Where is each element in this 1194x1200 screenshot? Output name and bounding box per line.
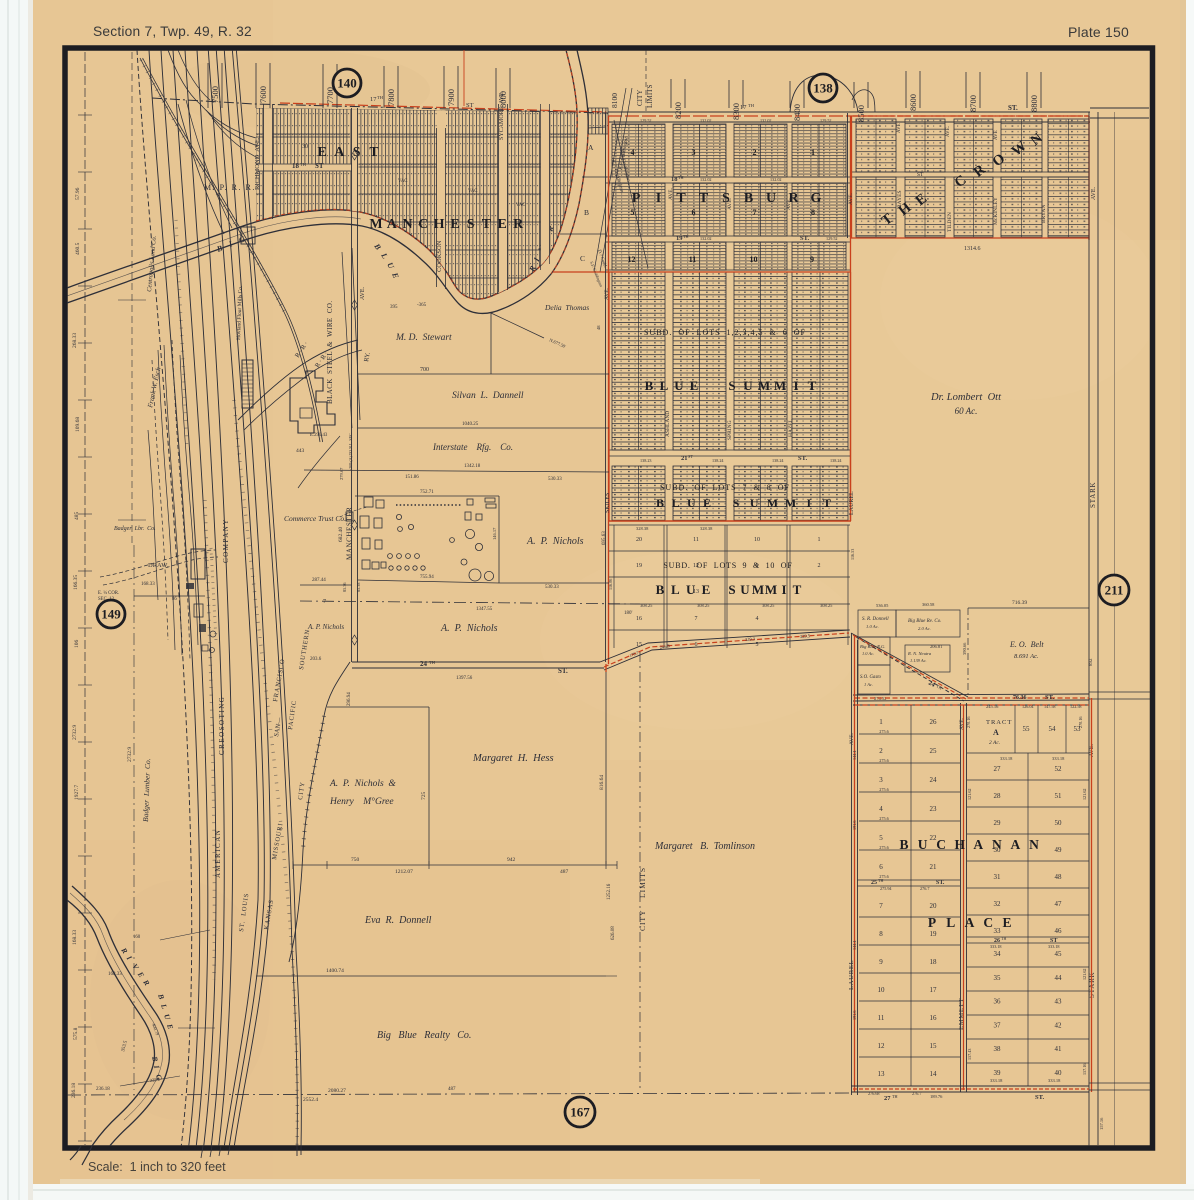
svg-text:I: I xyxy=(806,496,811,510)
svg-text:McKINLEY: McKINLEY xyxy=(993,197,999,225)
svg-text:AMERICAN: AMERICAN xyxy=(214,829,222,878)
svg-text:7800: 7800 xyxy=(386,89,396,106)
svg-text:E: E xyxy=(1002,915,1011,930)
svg-text:180': 180' xyxy=(624,611,633,616)
svg-text:51: 51 xyxy=(1055,792,1063,800)
svg-text:S. R. Donnell: S. R. Donnell xyxy=(862,617,889,622)
svg-text:21: 21 xyxy=(930,863,938,871)
svg-text:TH: TH xyxy=(1001,936,1006,941)
svg-text:25: 25 xyxy=(871,880,877,886)
svg-text:A: A xyxy=(973,837,983,852)
svg-text:329.5: 329.5 xyxy=(800,633,811,639)
svg-text:15: 15 xyxy=(930,1042,938,1050)
svg-text:Big Blue R.G.: Big Blue R.G. xyxy=(860,644,886,649)
svg-text:AVE.: AVE. xyxy=(668,187,674,200)
svg-text:S.O. Gasto: S.O. Gasto xyxy=(860,675,882,680)
svg-text:8400: 8400 xyxy=(792,104,802,121)
svg-text:A: A xyxy=(993,728,999,737)
svg-text:B: B xyxy=(899,837,908,852)
svg-text:14: 14 xyxy=(930,1070,938,1078)
svg-text:26: 26 xyxy=(930,718,938,726)
svg-text:ST: ST xyxy=(1050,938,1057,944)
svg-text:146.17: 146.17 xyxy=(492,527,497,540)
svg-text:SUBD. OF LOTS 9 & 10 OF: SUBD. OF LOTS 9 & 10 OF xyxy=(663,561,792,570)
svg-text:DRAW.: DRAW. xyxy=(148,562,169,569)
svg-text:276.7: 276.7 xyxy=(920,886,929,891)
svg-text:36: 36 xyxy=(994,998,1002,1006)
svg-text:1: 1 xyxy=(879,718,883,726)
svg-text:EMMETT: EMMETT xyxy=(958,998,965,1030)
svg-text:TH: TH xyxy=(892,1094,898,1099)
svg-text:86: 86 xyxy=(172,597,177,602)
svg-text:4: 4 xyxy=(631,148,635,157)
svg-text:ST.: ST. xyxy=(800,235,809,242)
svg-text:13: 13 xyxy=(878,1070,886,1078)
svg-text:40: 40 xyxy=(1055,1069,1063,1077)
svg-text:275.6: 275.6 xyxy=(879,816,888,821)
svg-text:SKILES: SKILES xyxy=(605,493,611,513)
svg-text:TRACT: TRACT xyxy=(986,719,1012,726)
svg-text:4: 4 xyxy=(756,616,759,622)
svg-text:26: 26 xyxy=(994,938,1000,944)
svg-text:1397.56: 1397.56 xyxy=(456,676,473,681)
svg-text:10: 10 xyxy=(878,986,886,994)
svg-text:485: 485 xyxy=(74,512,80,521)
svg-text:132.02: 132.02 xyxy=(700,177,712,182)
svg-text:E.290.43: E.290.43 xyxy=(310,433,328,438)
svg-text:B: B xyxy=(584,208,589,217)
svg-text:AVE: AVE xyxy=(897,123,902,133)
svg-text:1 Ac.: 1 Ac. xyxy=(864,682,873,687)
svg-text:SUBD. OF LOTS 1,2,3,4,5 &: SUBD. OF LOTS 1,2,3,4,5 & 6 OF xyxy=(644,328,806,337)
svg-text:530.33: 530.33 xyxy=(545,585,559,590)
svg-text:55: 55 xyxy=(1023,725,1031,733)
svg-text:8200: 8200 xyxy=(673,102,683,119)
svg-text:1347.55: 1347.55 xyxy=(476,607,493,612)
svg-text:AVE.: AVE. xyxy=(849,732,855,745)
svg-text:S: S xyxy=(728,582,735,597)
svg-text:1400.74: 1400.74 xyxy=(326,968,344,974)
svg-text:U: U xyxy=(740,582,750,597)
svg-text:85.36: 85.36 xyxy=(342,583,347,592)
svg-text:129.52: 129.52 xyxy=(826,236,838,241)
svg-text:287.44: 287.44 xyxy=(312,578,326,583)
svg-text:ST: ST xyxy=(315,162,324,170)
svg-text:AVE.: AVE. xyxy=(727,197,733,210)
svg-text:P: P xyxy=(928,915,936,930)
svg-text:B: B xyxy=(645,378,654,393)
svg-text:20: 20 xyxy=(930,902,938,910)
svg-text:CITY: CITY xyxy=(638,910,647,932)
svg-text:23: 23 xyxy=(930,805,938,813)
svg-text:132.02: 132.02 xyxy=(700,118,712,123)
svg-text:129.52: 129.52 xyxy=(820,118,832,123)
svg-text:54: 54 xyxy=(1049,725,1057,733)
svg-text:VAC: VAC xyxy=(468,189,478,194)
svg-text:Commerce Trust Co.: Commerce Trust Co. xyxy=(284,514,346,523)
svg-text:2: 2 xyxy=(753,148,757,157)
svg-text:32: 32 xyxy=(994,900,1002,908)
svg-text:4: 4 xyxy=(879,805,883,813)
svg-text:333.18: 333.18 xyxy=(990,1078,1003,1083)
svg-text:85.38: 85.38 xyxy=(356,583,361,592)
svg-text:138.24: 138.24 xyxy=(772,458,784,463)
svg-text:20: 20 xyxy=(636,537,642,543)
svg-text:E: E xyxy=(690,378,699,393)
svg-text:Margaret B. Tomlinson: Margaret B. Tomlinson xyxy=(654,841,755,852)
svg-text:A. P. Nichols: A. P. Nichols xyxy=(440,623,498,634)
svg-text:10: 10 xyxy=(750,255,758,264)
svg-text:166.35: 166.35 xyxy=(73,575,79,590)
svg-text:T: T xyxy=(482,217,492,232)
svg-text:279.67: 279.67 xyxy=(339,467,344,480)
svg-text:T: T xyxy=(793,582,802,597)
svg-text:T: T xyxy=(699,191,709,206)
svg-text:38: 38 xyxy=(994,1045,1002,1053)
svg-text:37: 37 xyxy=(994,1021,1002,1029)
svg-text:L: L xyxy=(660,378,669,393)
svg-text:296.94: 296.94 xyxy=(347,692,352,706)
svg-text:ST.: ST. xyxy=(1045,694,1054,701)
svg-text:2732.9: 2732.9 xyxy=(72,725,78,740)
svg-text:M: M xyxy=(758,378,770,393)
svg-text:L: L xyxy=(672,496,680,510)
svg-text:48: 48 xyxy=(596,325,601,330)
svg-text:A: A xyxy=(588,143,594,152)
svg-text:157.16: 157.16 xyxy=(1082,1063,1087,1075)
svg-text:CITY: CITY xyxy=(636,90,644,106)
svg-text:151.86: 151.86 xyxy=(405,475,419,480)
svg-text:191.6: 191.6 xyxy=(852,1011,857,1020)
svg-text:144.4: 144.4 xyxy=(852,750,857,760)
svg-text:LIMITS: LIMITS xyxy=(638,867,647,898)
svg-text:Dr. Lombert Ott: Dr. Lombert Ott xyxy=(930,392,1002,403)
svg-text:Interstate Rfg. Co.: Interstate Rfg. Co. xyxy=(432,442,513,452)
svg-text:U: U xyxy=(674,378,684,393)
svg-text:132.02: 132.02 xyxy=(700,236,712,241)
svg-text:276.68: 276.68 xyxy=(868,1091,880,1096)
svg-text:ST: ST xyxy=(466,102,474,109)
svg-text:7900: 7900 xyxy=(446,89,456,106)
svg-text:57.96: 57.96 xyxy=(75,187,81,200)
svg-text:52: 52 xyxy=(1055,765,1063,773)
svg-text:M: M xyxy=(369,217,382,232)
svg-text:TH: TH xyxy=(678,175,684,180)
svg-text:A: A xyxy=(334,145,345,160)
svg-text:Scale: 1 inch to 320 feet: Scale: 1 inch to 320 feet xyxy=(88,1160,226,1174)
svg-text:121.62: 121.62 xyxy=(1082,968,1087,980)
svg-text:206.81: 206.81 xyxy=(930,644,942,649)
svg-text:M. P. R. R.: M. P. R. R. xyxy=(204,183,256,192)
svg-text:725: 725 xyxy=(421,792,427,801)
svg-text:STARK: STARK xyxy=(1089,482,1097,508)
svg-text:157.16: 157.16 xyxy=(1099,1117,1104,1130)
svg-text:LAUREL: LAUREL xyxy=(849,491,855,515)
svg-text:SYCAMORE AVE.: SYCAMORE AVE. xyxy=(499,90,505,140)
svg-text:46: 46 xyxy=(1055,927,1063,935)
svg-text:695.63: 695.63 xyxy=(602,531,607,545)
svg-text:17: 17 xyxy=(930,986,938,994)
svg-text:-365: -365 xyxy=(417,303,427,308)
svg-text:44: 44 xyxy=(1055,974,1063,982)
svg-text:144.4: 144.4 xyxy=(852,940,857,950)
svg-text:360.58: 360.58 xyxy=(922,602,935,607)
svg-text:U: U xyxy=(766,191,776,206)
svg-text:333.18: 333.18 xyxy=(1048,1078,1061,1083)
svg-text:333.18: 333.18 xyxy=(1048,944,1060,949)
svg-text:SUBD. OF LOTS 7 & 8 OF: SUBD. OF LOTS 7 & 8 OF xyxy=(660,483,790,492)
svg-text:16: 16 xyxy=(930,1014,938,1022)
svg-text:-269.(A) TO N.L. SEC.: -269.(A) TO N.L. SEC. xyxy=(348,432,353,470)
svg-text:N: N xyxy=(992,837,1002,852)
svg-text:892: 892 xyxy=(1089,658,1094,666)
svg-text:275.6: 275.6 xyxy=(879,845,888,850)
svg-text:L: L xyxy=(946,915,955,930)
svg-text:ST.: ST. xyxy=(1008,104,1018,112)
svg-text:8: 8 xyxy=(879,930,883,938)
svg-text:Delia Thomas: Delia Thomas xyxy=(544,303,589,312)
svg-text:M. D. Stewart: M. D. Stewart xyxy=(395,333,452,343)
svg-text:390.66: 390.66 xyxy=(962,642,967,655)
svg-text:41: 41 xyxy=(1055,1045,1063,1053)
svg-text:A: A xyxy=(387,217,398,232)
svg-text:AVE: AVE xyxy=(994,130,999,140)
svg-text:B: B xyxy=(656,496,664,510)
svg-text:138: 138 xyxy=(813,81,833,96)
svg-text:BRYAN: BRYAN xyxy=(1041,205,1047,223)
svg-text:MANCHESTER: MANCHESTER xyxy=(346,507,354,560)
svg-text:27: 27 xyxy=(884,1095,891,1102)
svg-text:750: 750 xyxy=(351,857,360,863)
svg-text:122.58: 122.58 xyxy=(1070,704,1082,709)
svg-text:24: 24 xyxy=(930,776,938,784)
svg-text:VAC: VAC xyxy=(516,203,526,208)
svg-text:Plate 150: Plate 150 xyxy=(1068,24,1129,40)
svg-text:1314.6: 1314.6 xyxy=(964,246,981,252)
svg-text:19: 19 xyxy=(636,563,642,569)
svg-text:ST.: ST. xyxy=(798,455,807,462)
svg-text:21: 21 xyxy=(681,455,688,462)
svg-text:T: T xyxy=(369,145,379,160)
svg-text:RAYES: RAYES xyxy=(897,190,903,208)
svg-text:AVE.: AVE. xyxy=(959,717,965,730)
svg-text:275.94: 275.94 xyxy=(880,886,892,891)
svg-text:TH: TH xyxy=(748,103,755,108)
svg-text:ASHLAND: ASHLAND xyxy=(665,411,671,437)
svg-text:ST: ST xyxy=(917,172,924,178)
svg-text:1.139 Ac.: 1.139 Ac. xyxy=(910,658,927,663)
svg-text:167: 167 xyxy=(570,1105,590,1120)
svg-text:Big Blue Realty Co.: Big Blue Realty Co. xyxy=(377,1030,471,1041)
svg-text:333.18: 333.18 xyxy=(1000,756,1013,761)
svg-text:942: 942 xyxy=(507,857,516,863)
svg-text:A. P. Nichols: A. P. Nichols xyxy=(526,536,584,547)
svg-text:Eva R. Donnell: Eva R. Donnell xyxy=(364,915,432,926)
svg-text:M: M xyxy=(767,496,778,510)
svg-text:755.94: 755.94 xyxy=(420,575,434,580)
svg-text:S: S xyxy=(728,378,735,393)
svg-text:U: U xyxy=(686,582,696,597)
svg-text:328.38: 328.38 xyxy=(636,526,649,531)
svg-text:9: 9 xyxy=(810,255,814,264)
svg-text:7: 7 xyxy=(323,599,326,605)
svg-text:Section 7, Twp. 49, R. 32: Section 7, Twp. 49, R. 32 xyxy=(93,24,252,39)
svg-text:203.6: 203.6 xyxy=(310,657,322,662)
svg-text:TILDEN: TILDEN xyxy=(947,212,953,232)
svg-text:C: C xyxy=(418,217,428,232)
svg-text:T: T xyxy=(808,378,817,393)
svg-text:U: U xyxy=(743,378,753,393)
svg-text:333.18: 333.18 xyxy=(1052,756,1065,761)
svg-text:191.6: 191.6 xyxy=(852,821,857,830)
svg-text:106: 106 xyxy=(74,640,80,649)
svg-text:Margaret H. Hess: Margaret H. Hess xyxy=(472,753,554,764)
svg-text:1.0 Ac.: 1.0 Ac. xyxy=(866,624,879,629)
svg-text:N: N xyxy=(402,217,412,232)
svg-text:48: 48 xyxy=(1055,873,1063,881)
svg-text:132.02: 132.02 xyxy=(760,118,772,123)
svg-text:2732.9: 2732.9 xyxy=(127,747,133,762)
svg-text:M: M xyxy=(765,582,777,597)
svg-text:487: 487 xyxy=(560,869,569,875)
svg-text:2 Ac.: 2 Ac. xyxy=(989,740,1000,746)
svg-text:17: 17 xyxy=(740,104,747,111)
svg-text:308.25: 308.25 xyxy=(820,603,833,608)
svg-text:30: 30 xyxy=(302,144,308,150)
svg-text:L: L xyxy=(671,582,680,597)
svg-text:ST.: ST. xyxy=(936,880,945,886)
svg-text:U: U xyxy=(750,496,759,510)
svg-text:12: 12 xyxy=(878,1042,886,1050)
svg-text:536.05: 536.05 xyxy=(876,603,889,608)
svg-text:147.58: 147.58 xyxy=(1044,704,1056,709)
svg-text:121.62: 121.62 xyxy=(967,788,972,800)
svg-text:28: 28 xyxy=(994,792,1002,800)
svg-text:Badger Lbr. Co.: Badger Lbr. Co. xyxy=(114,526,156,532)
svg-text:31: 31 xyxy=(994,873,1002,881)
svg-text:168.33: 168.33 xyxy=(72,930,78,945)
svg-text:45: 45 xyxy=(1055,950,1063,958)
svg-text:3: 3 xyxy=(879,776,883,784)
svg-text:S: S xyxy=(467,217,475,232)
svg-text:700: 700 xyxy=(420,367,429,373)
svg-text:Silvan L. Dannell: Silvan L. Dannell xyxy=(452,391,524,401)
svg-text:460.5: 460.5 xyxy=(75,242,81,255)
svg-text:6: 6 xyxy=(692,208,696,217)
svg-text:116.06: 116.06 xyxy=(608,579,613,590)
svg-text:126.04: 126.04 xyxy=(1022,704,1034,709)
svg-text:C: C xyxy=(580,254,585,263)
svg-text:211: 211 xyxy=(1105,583,1124,598)
svg-text:157.43: 157.43 xyxy=(967,1048,972,1060)
svg-text:168.33: 168.33 xyxy=(141,582,155,587)
svg-text:752.71: 752.71 xyxy=(420,490,434,495)
svg-text:TH: TH xyxy=(300,162,307,167)
svg-text:E: E xyxy=(498,217,507,232)
svg-text:7: 7 xyxy=(879,902,883,910)
svg-text:308.25: 308.25 xyxy=(697,603,710,608)
svg-text:47: 47 xyxy=(1055,900,1063,908)
svg-text:487: 487 xyxy=(448,1087,456,1092)
svg-text:132.02: 132.02 xyxy=(770,177,782,182)
svg-text:1.0 Ac.: 1.0 Ac. xyxy=(862,651,874,656)
svg-text:275.6: 275.6 xyxy=(879,758,888,763)
svg-text:E: E xyxy=(703,496,711,510)
svg-text:AVE.: AVE. xyxy=(360,286,366,300)
svg-text:2.0 Ac.: 2.0 Ac. xyxy=(918,626,931,631)
svg-text:TH: TH xyxy=(377,95,384,100)
svg-text:18: 18 xyxy=(930,958,938,966)
svg-text:275.6: 275.6 xyxy=(879,787,888,792)
svg-text:308.25: 308.25 xyxy=(640,603,653,608)
svg-text:Henry M°Gree: Henry M°Gree xyxy=(329,796,394,807)
svg-text:A. P. Nichols &: A. P. Nichols & xyxy=(329,779,396,789)
svg-text:C: C xyxy=(936,837,946,852)
svg-text:M: M xyxy=(774,378,786,393)
svg-text:Big Blue Re. Co.: Big Blue Re. Co. xyxy=(908,619,941,624)
svg-text:R: R xyxy=(513,217,524,232)
svg-text:39: 39 xyxy=(994,1069,1002,1077)
svg-text:236.18: 236.18 xyxy=(96,1087,110,1092)
svg-text:H: H xyxy=(434,217,445,232)
svg-text:5: 5 xyxy=(631,208,635,217)
svg-text:333.18: 333.18 xyxy=(990,944,1002,949)
svg-text:8700: 8700 xyxy=(968,95,978,112)
svg-text:19: 19 xyxy=(930,930,938,938)
svg-text:682.40: 682.40 xyxy=(338,527,344,542)
svg-text:2552.4: 2552.4 xyxy=(303,1097,318,1103)
svg-text:AVE.: AVE. xyxy=(946,126,951,137)
svg-text:43: 43 xyxy=(1055,998,1063,1006)
svg-text:RICHMOND AVE.: RICHMOND AVE. xyxy=(254,137,261,190)
svg-text:138.23: 138.23 xyxy=(640,458,652,463)
svg-text:168.33: 168.33 xyxy=(108,972,122,977)
svg-text:25: 25 xyxy=(930,747,938,755)
svg-text:5: 5 xyxy=(879,834,883,842)
svg-text:27: 27 xyxy=(994,765,1002,773)
svg-text:AVE.: AVE. xyxy=(848,192,854,205)
svg-text:ST.: ST. xyxy=(558,667,568,675)
svg-text:R. N. Neutra: R. N. Neutra xyxy=(907,651,932,656)
svg-text:AVE.: AVE. xyxy=(786,197,792,210)
svg-text:BLACK STEEL & WIRE CO.: BLACK STEEL & WIRE CO. xyxy=(326,300,334,404)
svg-text:VAC: VAC xyxy=(398,179,408,184)
svg-text:575.8: 575.8 xyxy=(73,1027,79,1040)
svg-text:E: E xyxy=(317,145,326,160)
svg-text:24: 24 xyxy=(420,660,428,668)
svg-text:116.53: 116.53 xyxy=(850,549,855,560)
svg-text:716.39: 716.39 xyxy=(1012,600,1027,606)
svg-text:1212.07: 1212.07 xyxy=(395,869,413,875)
svg-text:TH: TH xyxy=(429,660,436,665)
svg-text:16: 16 xyxy=(636,616,642,622)
svg-text:308.25: 308.25 xyxy=(762,603,775,608)
svg-text:236.18: 236.18 xyxy=(71,1083,77,1098)
svg-text:B: B xyxy=(744,191,753,206)
svg-text:A: A xyxy=(1011,837,1021,852)
svg-text:33: 33 xyxy=(994,927,1002,935)
svg-text:8800: 8800 xyxy=(1029,95,1039,112)
svg-text:8600: 8600 xyxy=(908,94,918,111)
svg-text:B: B xyxy=(656,582,665,597)
svg-text:121.62: 121.62 xyxy=(1082,788,1087,800)
svg-text:7500: 7500 xyxy=(210,86,220,103)
svg-text:245.16: 245.16 xyxy=(986,704,999,709)
svg-text:109.68: 109.68 xyxy=(75,417,81,432)
svg-text:443: 443 xyxy=(296,448,305,454)
svg-text:AVE.: AVE. xyxy=(1091,186,1097,200)
svg-text:I: I xyxy=(793,378,798,393)
